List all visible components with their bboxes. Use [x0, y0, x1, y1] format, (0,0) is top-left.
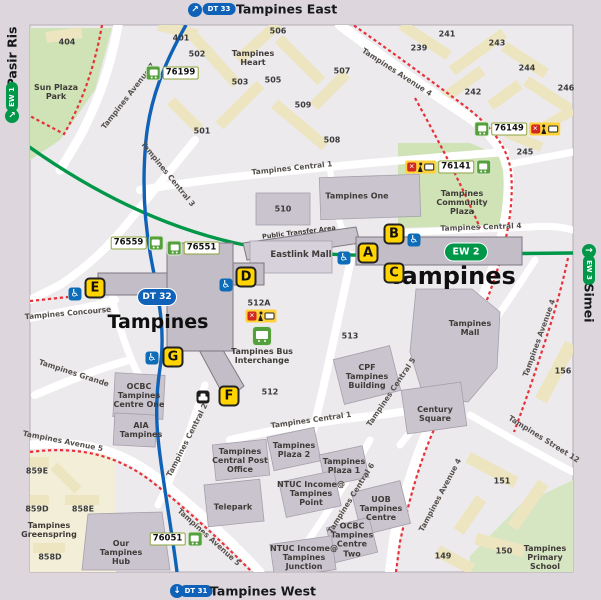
exit-d: D [236, 267, 257, 288]
walking-person-icon [418, 162, 423, 172]
no-bus-icon: ✕ [531, 125, 540, 134]
bus-stop-number: 76149 [491, 123, 527, 136]
place-label: Tampines Plaza 1 [322, 457, 366, 475]
taxi-stand-icon [197, 391, 210, 404]
place-label: Tampines Central Post Office [211, 447, 269, 475]
bus-icon [187, 532, 202, 547]
bus-stop-number: 76141 [438, 161, 474, 174]
place-label: Tampines Primary School [516, 544, 574, 572]
block-number: 404 [59, 38, 76, 47]
exit-a: A [358, 243, 379, 264]
bus-outline-icon [424, 163, 434, 171]
bus-interchange-icon [252, 326, 272, 346]
block-number: 507 [334, 67, 351, 76]
block-number: 401 [173, 34, 190, 43]
adjacent-station-left: Pasir Ris [5, 27, 20, 88]
exit-f: F [219, 386, 240, 407]
place-label: Tampines Community Plaza [434, 189, 490, 217]
bus-stop-number: 76199 [163, 67, 199, 80]
no-bus-icon: ✕ [407, 163, 416, 172]
wheelchair-icon: ♿ [146, 352, 159, 365]
bus-stop-76149: 76149 ✕ [474, 122, 560, 137]
block-number: 242 [465, 88, 482, 97]
exit-e: E [85, 278, 106, 299]
bus-icon [148, 236, 163, 251]
no-bus-icon: ✕ [248, 312, 257, 321]
exit-c: C [384, 263, 405, 284]
wheelchair-icon: ♿ [69, 288, 82, 301]
place-label: OCBC Tampines Centre One [113, 382, 165, 410]
block-number: 510 [275, 205, 292, 214]
place-label: Tampines Bus Interchange [225, 347, 299, 365]
station-locality-map: ↗ DT 33 Tampines East ↓ DT 31 Tampines W… [0, 0, 601, 600]
bus-stop-number: 76551 [184, 242, 220, 255]
place-label: Eastlink Mall [270, 251, 331, 261]
place-label: UOB Tampines Centre [358, 495, 404, 523]
block-number: 245 [517, 148, 534, 157]
place-label: Tampines Plaza 2 [271, 441, 317, 459]
block-number: 505 [265, 76, 282, 85]
walking-person-icon [258, 311, 263, 321]
block-number: 150 [496, 547, 513, 556]
station-name-dt: Tampines [108, 311, 209, 333]
no-bus-walk-badge: ✕ [529, 123, 560, 136]
block-number: 859E [26, 467, 48, 476]
wheelchair-icon: ♿ [220, 279, 233, 292]
direction-arrow-icon: ↗ [5, 109, 19, 123]
direction-arrow-icon: ↗ [188, 3, 202, 17]
block-number: 858D [38, 553, 61, 562]
block-number: 151 [494, 477, 511, 486]
place-label: NTUC Income@ Tampines Point [277, 480, 345, 508]
block-number: 513 [342, 332, 359, 341]
place-label: Sun Plaza Park [30, 83, 82, 101]
bus-icon [167, 241, 182, 256]
place-label: Tampines Heart [230, 49, 276, 67]
block-number: 243 [489, 39, 506, 48]
place-label: Tampines Greenspring [20, 521, 78, 539]
bus-stop-76141: ✕ 76141 [405, 160, 491, 175]
block-number: 858E [72, 505, 94, 514]
line-badge-dt33: DT 33 [203, 3, 236, 15]
exit-b: B [384, 224, 405, 245]
bus-stop-76551: 76551 [167, 241, 220, 256]
block-number: 239 [411, 44, 428, 53]
block-number: 512A [248, 299, 271, 308]
wheelchair-icon: ♿ [408, 234, 421, 247]
line-badge-dt31: DT 31 [180, 585, 213, 597]
block-number: 241 [439, 30, 456, 39]
block-number: 512 [262, 388, 279, 397]
block-number: 508 [324, 136, 341, 145]
no-bus-walk-badge: ✕ [246, 310, 277, 323]
place-label: Telepark [214, 502, 252, 511]
block-number: 149 [435, 552, 452, 561]
bus-stop-76051: 76051 [150, 532, 203, 547]
block-number: 244 [519, 64, 536, 73]
block-number: 501 [194, 127, 211, 136]
block-number: 502 [189, 50, 206, 59]
bus-stop-76559: 76559 [111, 236, 164, 251]
place-label: Our Tampines Hub [97, 539, 145, 567]
station-badge-ew2: EW 2 [444, 243, 488, 262]
place-label: Tampines Mall [446, 319, 494, 337]
no-bus-walk-badge: ✕ [405, 161, 436, 174]
station-name-ew: Tampines [388, 262, 516, 290]
wheelchair-icon: ♿ [338, 252, 351, 265]
bus-stop-number: 76559 [111, 237, 147, 250]
adjacent-station-top: Tampines East [236, 2, 337, 17]
bus-icon [476, 160, 491, 175]
place-label: CPF Tampines Building [340, 363, 394, 391]
bus-icon [146, 66, 161, 81]
block-number: 156 [555, 367, 572, 376]
block-number: 246 [558, 84, 575, 93]
block-number: 503 [232, 78, 249, 87]
bus-stop-76199: 76199 [146, 66, 199, 81]
place-label: Tampines One [325, 191, 388, 200]
adjacent-station-bottom: Tampines West [210, 584, 316, 599]
walking-person-icon [541, 124, 546, 134]
block-number: 509 [295, 101, 312, 110]
place-label: AIA Tampines [117, 421, 165, 439]
block-number: 859D [25, 505, 48, 514]
station-badge-dt32: DT 32 [137, 288, 177, 306]
bus-outline-icon [265, 312, 275, 320]
line-badge-ew3: EW 3 [583, 255, 595, 285]
exit-g: G [163, 347, 184, 368]
block-number: 506 [270, 27, 287, 36]
place-label: NTUC Income@ Tampines Junction [263, 544, 345, 572]
adjacent-station-right: Simei [582, 283, 597, 322]
bus-stop-number: 76051 [150, 533, 186, 546]
bus-outline-icon [548, 125, 558, 133]
place-label: Century Square [413, 405, 457, 423]
line-badge-ew1: EW 1 [6, 82, 18, 112]
bus-icon [474, 122, 489, 137]
